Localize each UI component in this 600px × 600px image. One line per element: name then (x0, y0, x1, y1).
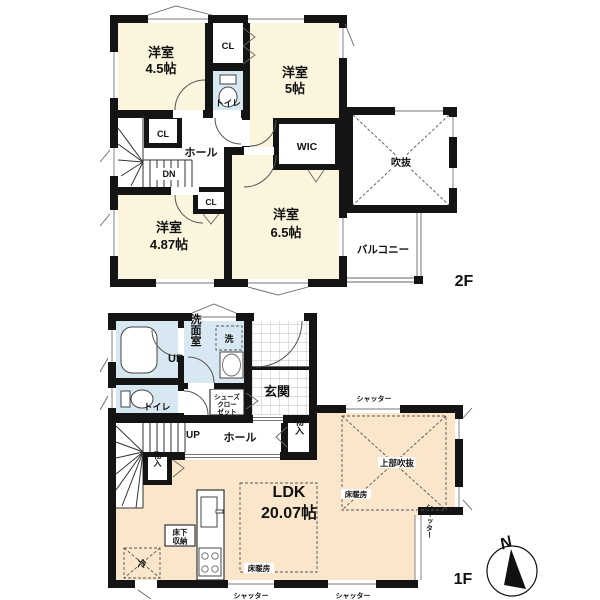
room-2f-65-size: 6.5帖 (270, 225, 301, 240)
up-label: UP (186, 430, 200, 441)
room-2f-45-size: 4.5帖 (145, 61, 176, 76)
floor-label-1f: 1F (454, 571, 473, 588)
senmen-label: 洗面室 (189, 312, 202, 346)
shutter-top-label: シャッター (357, 394, 392, 403)
closet-stairs-label: 物入 (153, 450, 162, 468)
fridge-label: 冷 (137, 558, 146, 569)
shoes-closet-line3: ゼット (217, 407, 237, 416)
cl-top-label: CL (222, 41, 235, 52)
north-indicator: N (487, 533, 537, 596)
room-2f-5-name: 洋室 (282, 65, 308, 80)
toilet-1f-label: トイレ (143, 402, 170, 412)
balcony-label: バルコニー (357, 244, 409, 256)
shoes-closet-line1: シューズ (214, 392, 240, 401)
toilet-2f-label: トイレ (215, 98, 241, 108)
room-2f-487-size: 4.87帖 (150, 237, 188, 252)
floor-heating-void-label: 床暖房 (345, 489, 368, 499)
hall-1f-label: ホール (224, 431, 257, 444)
cl-left-label: CL (157, 129, 169, 139)
stove-icon (199, 548, 221, 576)
shutter-bottom-right-label: シャッター (336, 591, 371, 600)
ldk-size: 20.07帖 (261, 503, 317, 522)
shutter-right-label: シャッター (426, 504, 434, 539)
cl-bottom-label: CL (205, 197, 216, 207)
underfloor-line1: 床下 (173, 527, 188, 537)
void-2f-label: 吹抜 (391, 156, 412, 169)
washer-label: 洗 (224, 333, 233, 344)
shutter-bottom-left-label: シャッター (234, 591, 269, 600)
compass-needle-icon (504, 549, 526, 589)
room-2f-65-name: 洋室 (273, 207, 299, 222)
hall-2f-label: ホール (185, 146, 218, 159)
dn-label: DN (163, 169, 176, 179)
room-2f-487-name: 洋室 (156, 220, 182, 235)
floor-1f: UB 洗面室 洗 トイレ シューズ クロー ゼット 玄関 UP ホール 物入 物… (100, 304, 473, 600)
floor-label-2f: 2F (455, 273, 474, 290)
ub-label: UB (168, 353, 184, 365)
kitchen-counter (197, 490, 224, 580)
underfloor-line2: 収納 (173, 536, 188, 546)
floorplan-canvas: 洋室 4.5帖 CL トイレ 洋室 5帖 WIC ホール DN CL CL 洋室… (0, 0, 600, 600)
sink-icon (220, 352, 243, 378)
porch-tiles (252, 321, 309, 366)
genkan-label: 玄関 (264, 384, 290, 399)
bathtub-icon (121, 327, 157, 373)
closet-hall-label: 物入 (294, 416, 305, 436)
room-2f-5-size: 5帖 (285, 81, 305, 96)
compass-n-label: N (498, 533, 515, 553)
wic-label: WIC (297, 141, 318, 153)
room-2f-45-name: 洋室 (148, 45, 174, 60)
floor-2f: 洋室 4.5帖 CL トイレ 洋室 5帖 WIC ホール DN CL CL 洋室… (100, 6, 474, 295)
floor-heating-ldk-label: 床暖房 (248, 563, 271, 573)
floorplan-svg: 洋室 4.5帖 CL トイレ 洋室 5帖 WIC ホール DN CL CL 洋室… (0, 0, 600, 600)
shoes-closet-line2: クロー (217, 400, 237, 409)
upper-void-label: 上部吹抜 (380, 458, 415, 468)
ldk-name: LDK (273, 484, 306, 501)
